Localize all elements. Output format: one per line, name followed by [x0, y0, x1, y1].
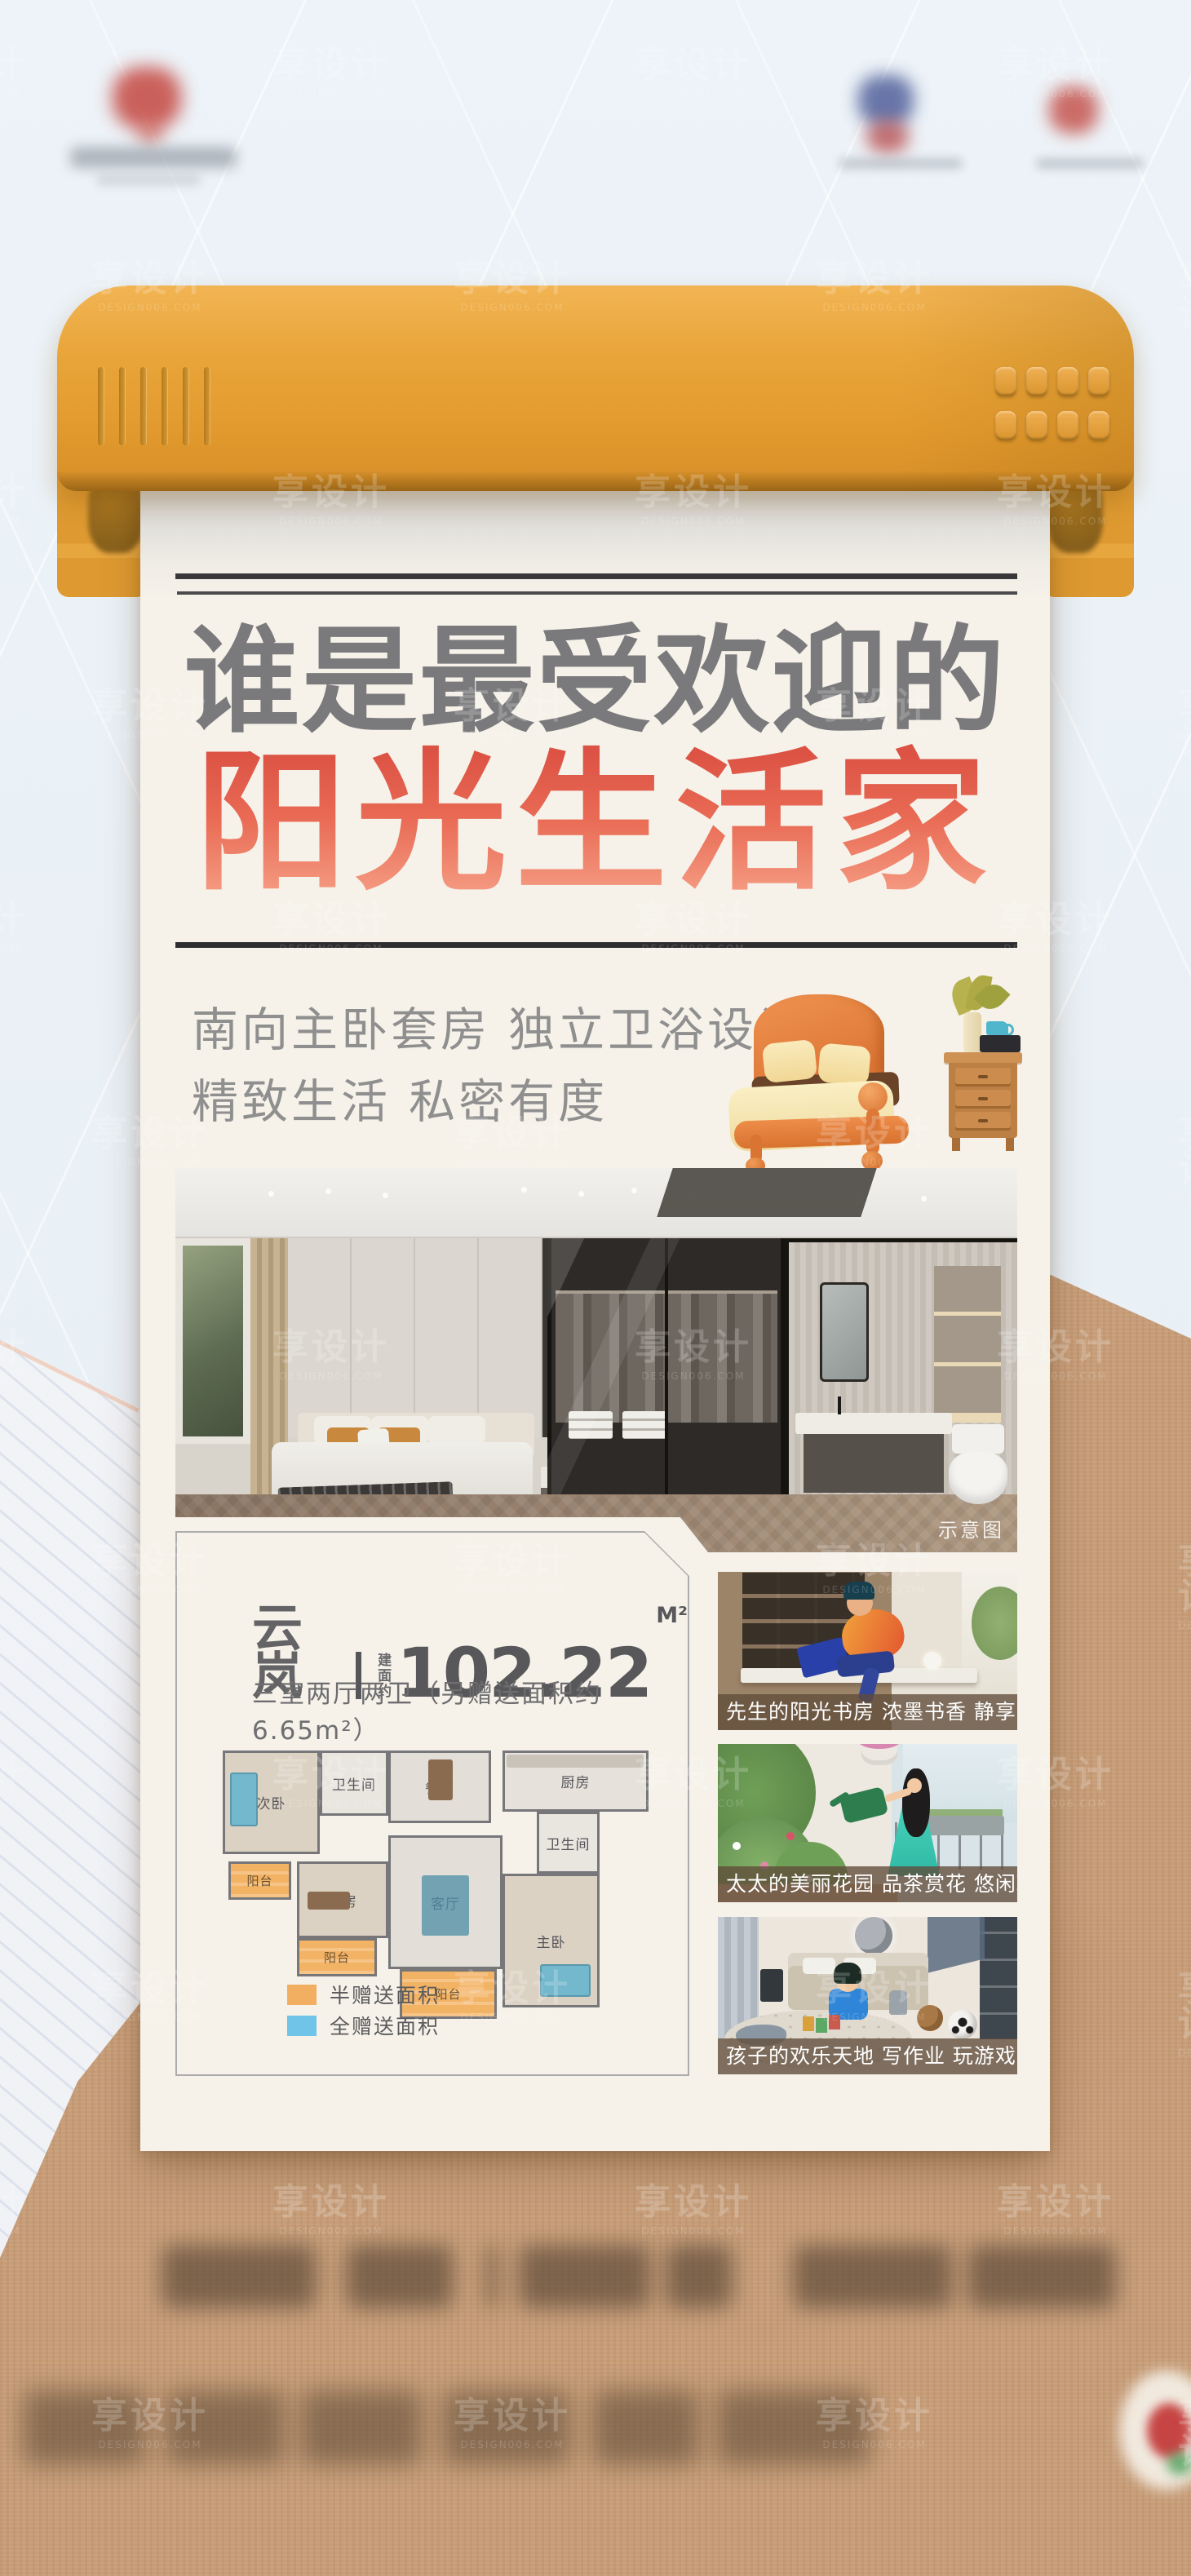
room-bathroom-2: 卫生间 — [537, 1812, 600, 1874]
photo-disclaimer-tag: 示意图 — [938, 1514, 1004, 1543]
room-balcony-2: 阳台 — [297, 1938, 377, 1976]
photo-ceiling-panel — [657, 1168, 876, 1217]
scene-basketball — [917, 2005, 943, 2031]
furniture-dining-table — [428, 1759, 453, 1800]
scene-garden-photo: 太太的美丽花园 品茶赏花 悠闲瑜伽 — [718, 1744, 1017, 1902]
scene-soccer-ball — [948, 2010, 977, 2039]
headline-line2: 阳光生活家 — [140, 743, 1050, 902]
scene-caption: 孩子的欢乐天地 写作业 玩游戏 看漫画 — [718, 2038, 1017, 2074]
blurred-footer-headline — [300, 2390, 423, 2465]
scene-kids-nightstand — [760, 1969, 783, 2002]
blurred-logo-topright-1 — [858, 75, 914, 126]
legend-label: 半赠送面积 — [330, 1980, 440, 2009]
photo-vanity-cabinet — [804, 1434, 944, 1493]
blurred-stamp-center — [1147, 2403, 1191, 2459]
photo-toilet — [949, 1452, 1007, 1504]
blurred-logotext-topright-2 — [1036, 158, 1144, 169]
master-suite-photo: 示意图 — [175, 1168, 1017, 1552]
photo-pillow — [428, 1416, 485, 1444]
blurred-footer-text — [519, 2245, 651, 2308]
photo-shelf-niche — [934, 1266, 1001, 1423]
scene-robot-toy — [889, 1990, 907, 2015]
headline-line1: 谁是最受欢迎的 — [140, 624, 1050, 740]
blurred-stamp-green — [1167, 2452, 1191, 2475]
nightstand-illustration — [944, 978, 1022, 1153]
scene-desk-lamp — [923, 1652, 941, 1670]
subtitle-line1: 南向主卧套房 独立卫浴设计 — [192, 993, 807, 1060]
printer-body — [57, 285, 1134, 491]
nightstand-cabinet — [949, 1063, 1017, 1138]
flyer-rule-top-1 — [175, 573, 1017, 579]
unit-area-unit: M² — [656, 1603, 688, 1628]
room-kitchen: 厨房 — [503, 1751, 649, 1812]
blurred-footer-text — [346, 2245, 454, 2308]
blurred-footer-text — [666, 2245, 733, 2308]
room-secondary-bedroom: 次卧 — [223, 1751, 320, 1854]
blurred-footer-headline — [592, 2390, 700, 2465]
scene-caption: 先生的阳光书房 浓墨书香 静享意趣 — [718, 1694, 1017, 1730]
legend-swatch-orange — [287, 1985, 317, 2005]
bed-post-ball — [858, 1082, 888, 1112]
nightstand-box — [980, 1035, 1021, 1052]
bed-pillow — [817, 1042, 871, 1086]
photo-vanity — [795, 1413, 952, 1434]
blurred-footer-text — [485, 2245, 498, 2308]
room-living: 客厅 — [388, 1835, 503, 1969]
legend-half-gift-area: 半赠送面积 — [287, 1980, 440, 2009]
printed-flyer: 谁是最受欢迎的 阳光生活家 南向主卧套房 独立卫浴设计 精致生活 私密有度 — [140, 489, 1050, 2151]
room-bathroom-1: 卫生间 — [320, 1751, 388, 1816]
furniture-bed — [540, 1964, 591, 1997]
scene-moon-lamp — [855, 1917, 892, 1954]
room-study: 书房 — [297, 1861, 388, 1938]
scene-flowers — [733, 1842, 741, 1850]
photo-window-art — [175, 1238, 250, 1444]
scene-man-hair — [843, 1582, 874, 1600]
scene-kids-pillows — [803, 1958, 835, 1974]
bed-illustration — [729, 994, 929, 1178]
furniture-rug — [422, 1875, 469, 1936]
unit-layout-desc: 三室两厅两卫（另赠送面积约6.65m²） — [252, 1673, 688, 1746]
nightstand-leg — [1006, 1138, 1014, 1151]
photo-faucet — [838, 1396, 841, 1414]
scene-boy-hair — [834, 1963, 861, 1984]
scene-study-photo: 先生的阳光书房 浓墨书香 静享意趣 — [718, 1572, 1017, 1730]
room-balcony-1: 阳台 — [228, 1861, 291, 1900]
photo-spotlights — [268, 1191, 274, 1197]
room-master-bedroom: 主卧 — [503, 1874, 600, 2007]
scene-caption: 太太的美丽花园 品茶赏花 悠闲瑜伽 — [718, 1866, 1017, 1902]
nightstand-top — [944, 1052, 1022, 1063]
floorplan-card: 云岚 建面约 102.22 M² 三室两厅两卫（另赠送面积约6.65m²） 次卧… — [175, 1531, 689, 2076]
photo-ceiling — [175, 1168, 1017, 1238]
blurred-footer-headline — [165, 2390, 286, 2465]
blurred-logotext-topleft-2 — [96, 175, 201, 185]
printer-buttons — [995, 367, 1109, 440]
room-dining: 餐厅 — [388, 1751, 491, 1823]
blurred-logo-topleft — [113, 67, 181, 129]
floorplan-card-inner: 云岚 建面约 102.22 M² 三室两厅两卫（另赠送面积约6.65m²） 次卧… — [177, 1533, 688, 2074]
blurred-footer-text — [162, 2245, 317, 2308]
photo-glass-glare — [547, 1238, 784, 1520]
nightstand-drawer — [955, 1068, 1011, 1087]
nightstand-leg — [952, 1138, 960, 1151]
teacup — [986, 1021, 1008, 1035]
flyer-rule-top-2 — [177, 591, 1017, 595]
blurred-logotext-topleft — [70, 147, 237, 168]
subtitle-line2: 精致生活 私密有度 — [192, 1064, 608, 1131]
printer-slot-shadow — [57, 471, 1134, 491]
furniture-bed — [230, 1773, 258, 1826]
legend-label: 全赠送面积 — [330, 2011, 440, 2040]
scene-kids-photo: 孩子的欢乐天地 写作业 玩游戏 看漫画 — [718, 1917, 1017, 2074]
photo-toilet-tank — [952, 1424, 1004, 1454]
floorplan-drawing: 次卧 卫生间 餐厅 厨房 卫生间 书房 客厅 主卧 阳台 阳台 阳台 — [203, 1747, 649, 2019]
blurred-footer-headline — [716, 2390, 871, 2465]
blurred-footer-text — [793, 2245, 953, 2308]
headline-divider — [175, 942, 1017, 948]
blurred-footer-headline — [23, 2390, 147, 2465]
scene-shelf — [980, 1917, 1017, 2039]
poster-page: 谁是最受欢迎的 阳光生活家 南向主卧套房 独立卫浴设计 精致生活 私密有度 — [0, 0, 1191, 2576]
bed-pillow — [762, 1039, 818, 1083]
blurred-logo-topright-2 — [1049, 86, 1098, 134]
scene-books — [803, 2016, 814, 2031]
blurred-footer-text — [967, 2245, 1116, 2308]
nightstand-drawer — [955, 1112, 1011, 1131]
furniture-desk — [308, 1892, 350, 1910]
printer-vents — [98, 367, 210, 445]
blurred-footer-headline — [442, 2390, 571, 2465]
legend-full-gift-area: 全赠送面积 — [287, 2011, 440, 2040]
bed-post — [866, 1109, 879, 1154]
nightstand-drawer — [955, 1090, 1011, 1109]
scene-boy-shirt — [829, 1989, 868, 2020]
blurred-logo-topright-1b — [866, 121, 909, 153]
furniture-counter — [507, 1755, 644, 1768]
legend-swatch-blue — [287, 2016, 317, 2036]
photo-mirror — [820, 1282, 869, 1382]
blurred-logo-topleft-tail — [137, 121, 163, 145]
plant-vase — [963, 1012, 981, 1053]
blurred-logotext-topright-1 — [839, 158, 963, 169]
photo-bed-wall — [288, 1238, 547, 1437]
bed-post-foot — [861, 1151, 883, 1171]
